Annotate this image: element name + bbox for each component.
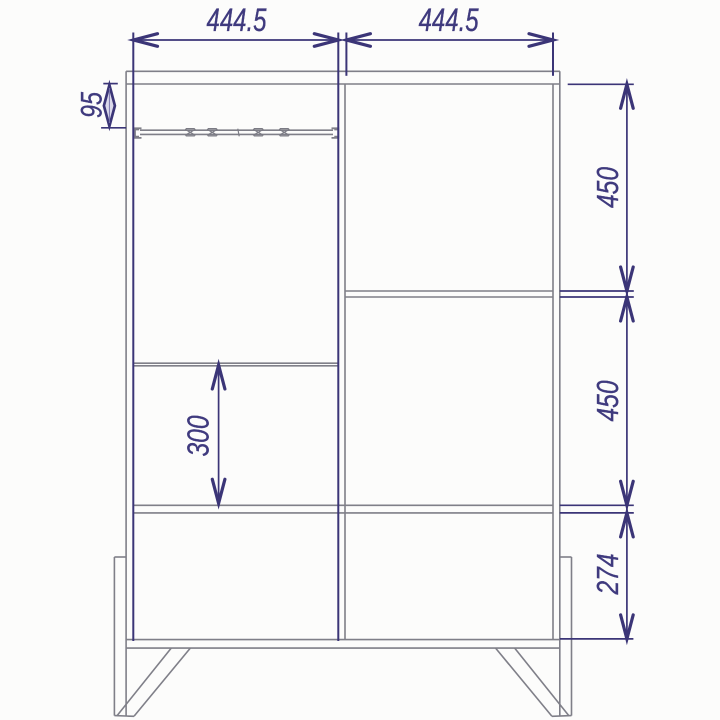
svg-text:450: 450: [590, 167, 625, 208]
svg-text:450: 450: [590, 381, 625, 422]
svg-text:95: 95: [76, 92, 109, 118]
svg-text:274: 274: [590, 554, 625, 596]
svg-text:444.5: 444.5: [419, 2, 479, 38]
svg-text:444.5: 444.5: [207, 2, 267, 38]
svg-text:300: 300: [181, 416, 216, 457]
